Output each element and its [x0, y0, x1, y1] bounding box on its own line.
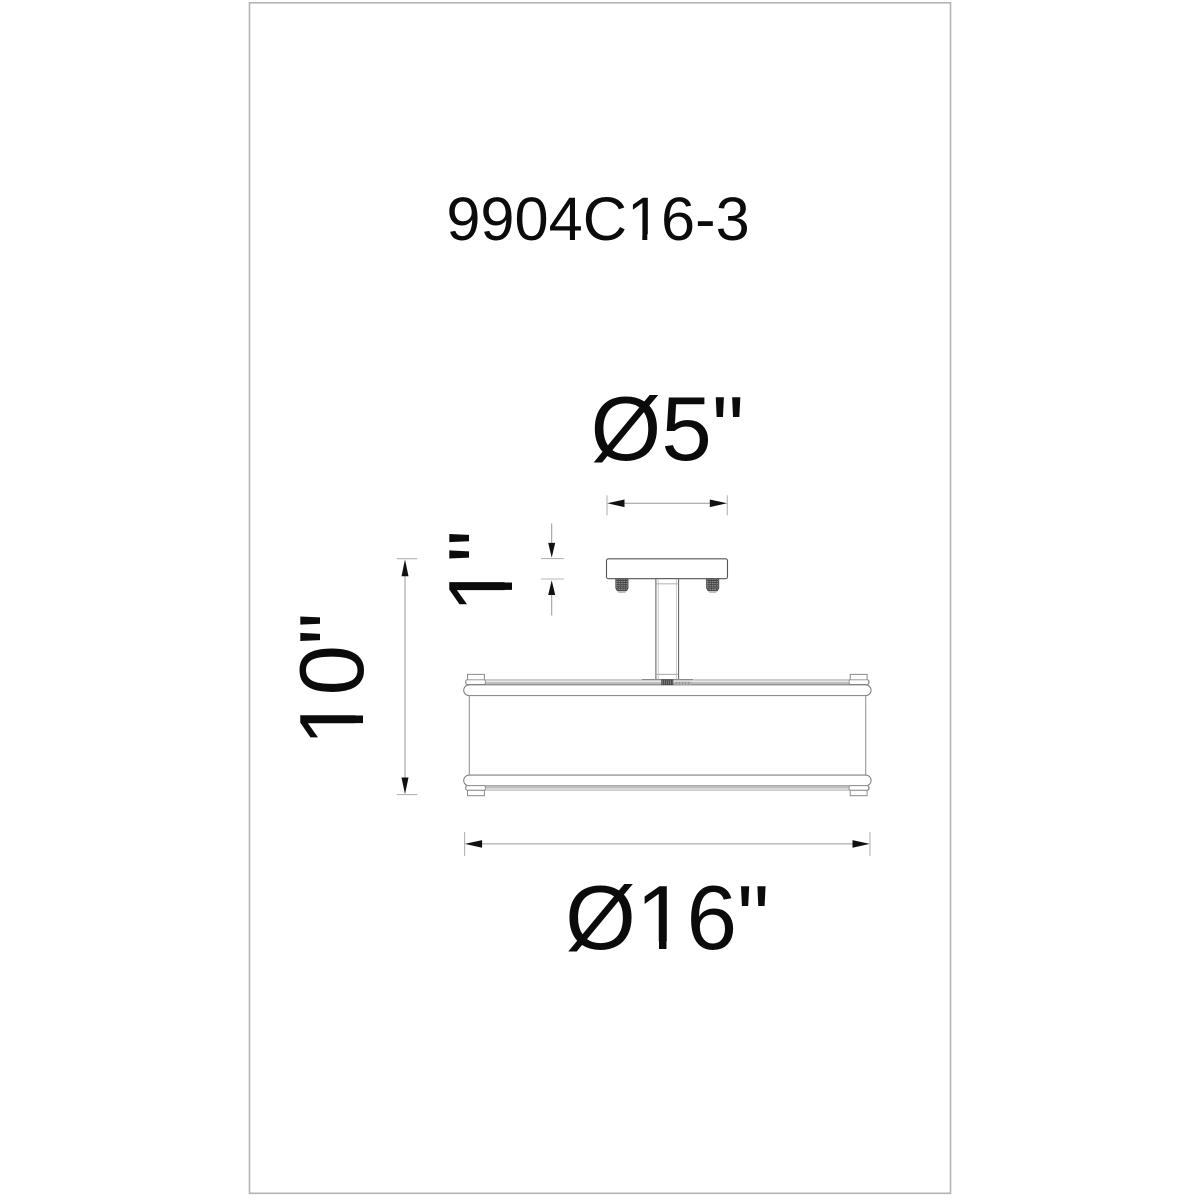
- svg-text:Ø5": Ø5": [590, 379, 744, 480]
- svg-text:9904C16-3: 9904C16-3: [446, 185, 749, 253]
- svg-text:Ø16": Ø16": [565, 868, 769, 969]
- svg-text:10": 10": [282, 613, 383, 747]
- svg-text:1": 1": [431, 530, 532, 613]
